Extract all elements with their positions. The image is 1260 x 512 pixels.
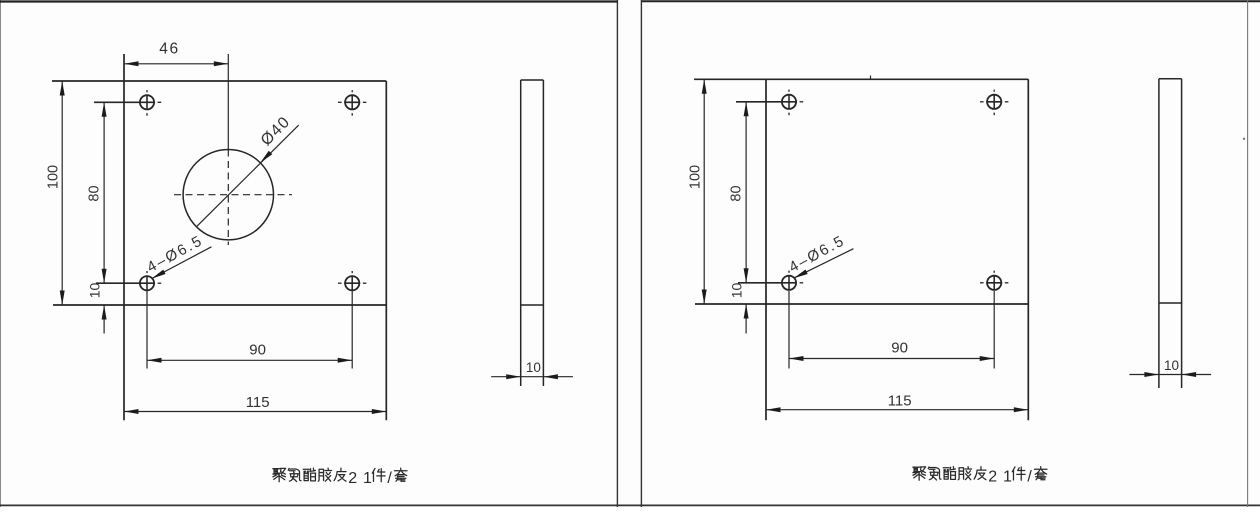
svg-text:90: 90 (249, 342, 266, 359)
svg-text:46: 46 (159, 41, 179, 58)
svg-text:90: 90 (891, 340, 908, 357)
svg-text:115: 115 (888, 392, 912, 409)
svg-text:10: 10 (526, 360, 541, 375)
svg-text:100: 100 (45, 165, 61, 189)
svg-text:1: 1 (363, 470, 372, 487)
svg-text:2: 2 (988, 468, 997, 485)
svg-text:/: / (1027, 468, 1032, 485)
svg-text:100: 100 (687, 165, 703, 189)
svg-text:115: 115 (246, 394, 270, 411)
svg-text:10: 10 (86, 283, 102, 299)
svg-text:10: 10 (1164, 358, 1179, 373)
svg-text:80: 80 (86, 185, 102, 201)
svg-text:80: 80 (728, 185, 744, 201)
svg-text:/: / (387, 470, 392, 487)
svg-text:1: 1 (1003, 468, 1012, 485)
svg-text:2: 2 (348, 470, 357, 487)
svg-text:10: 10 (728, 283, 744, 299)
